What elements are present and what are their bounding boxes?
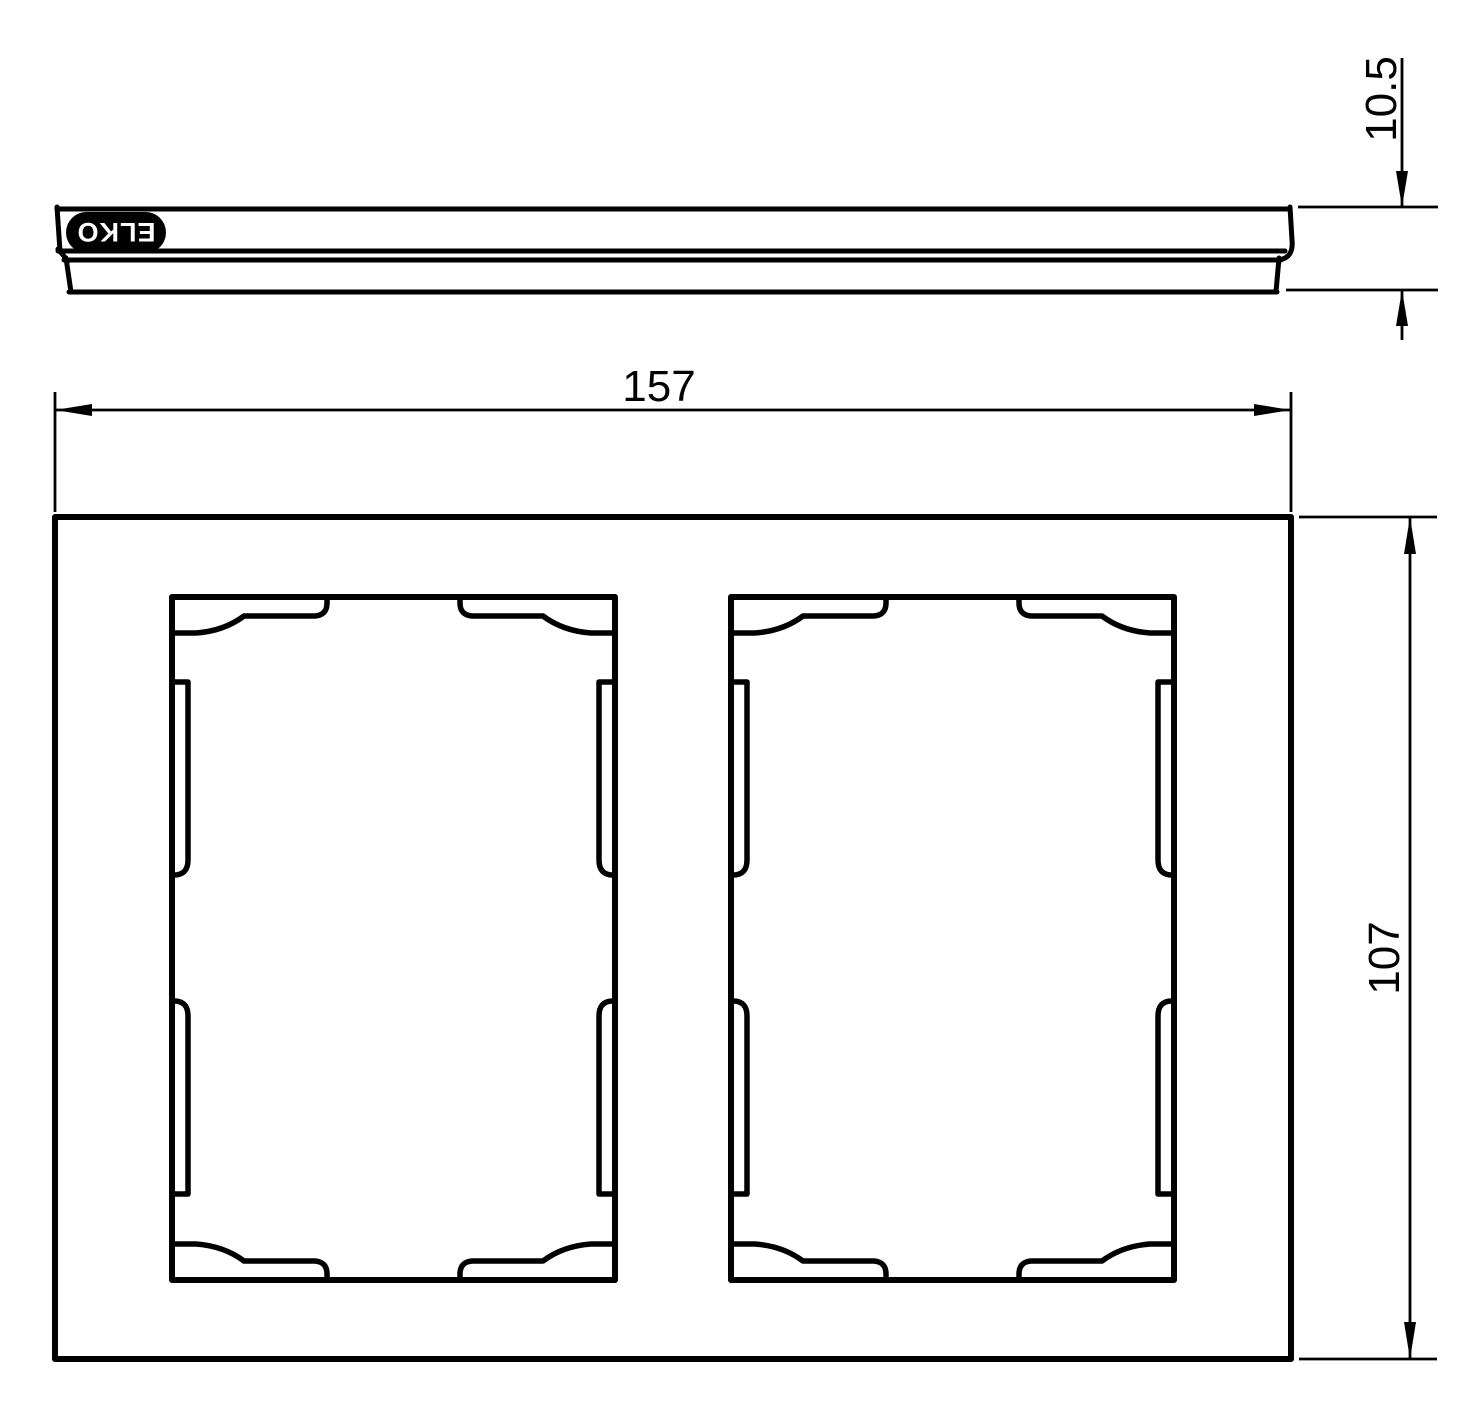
profile-lip-left-edge bbox=[66, 258, 71, 292]
drawing-canvas: ELKO 10.5 157 107 bbox=[0, 0, 1464, 1410]
opening-outline bbox=[172, 597, 615, 1280]
opening-tab-lower-right bbox=[599, 1001, 613, 1194]
dim-depth-label: 10.5 bbox=[1357, 56, 1406, 142]
logo-text: ELKO bbox=[76, 217, 155, 247]
opening-inner-bottom-right bbox=[460, 1244, 613, 1278]
opening-tab-upper-left bbox=[174, 682, 188, 875]
opening-inner-top-left bbox=[174, 599, 327, 633]
dim-depth-arrow-down bbox=[1396, 171, 1408, 207]
profile-left-edge bbox=[57, 207, 60, 251]
technical-drawing: ELKO 10.5 157 107 bbox=[0, 0, 1464, 1410]
dim-width-arrow-right bbox=[1254, 404, 1291, 416]
dim-width-label: 157 bbox=[622, 362, 695, 411]
opening-inner-bottom-left bbox=[174, 1244, 327, 1278]
dim-height-label: 107 bbox=[1360, 921, 1409, 994]
dim-height-arrow-up bbox=[1404, 517, 1416, 554]
opening-tab-lower-left bbox=[174, 1001, 188, 1194]
dim-depth-arrow-up bbox=[1396, 290, 1408, 326]
elko-logo-badge: ELKO bbox=[66, 212, 166, 253]
opening-inner-top-right bbox=[460, 599, 613, 633]
left-opening bbox=[172, 597, 615, 1280]
profile-lip-right-edge bbox=[1276, 258, 1279, 292]
side-profile-view bbox=[57, 207, 1292, 292]
right-opening bbox=[731, 597, 1174, 1280]
dim-width-arrow-left bbox=[55, 404, 92, 416]
opening-tab-upper-right bbox=[599, 682, 613, 875]
front-view bbox=[55, 517, 1291, 1359]
dim-height-arrow-down bbox=[1404, 1322, 1416, 1359]
frame-outer-outline bbox=[55, 517, 1291, 1359]
